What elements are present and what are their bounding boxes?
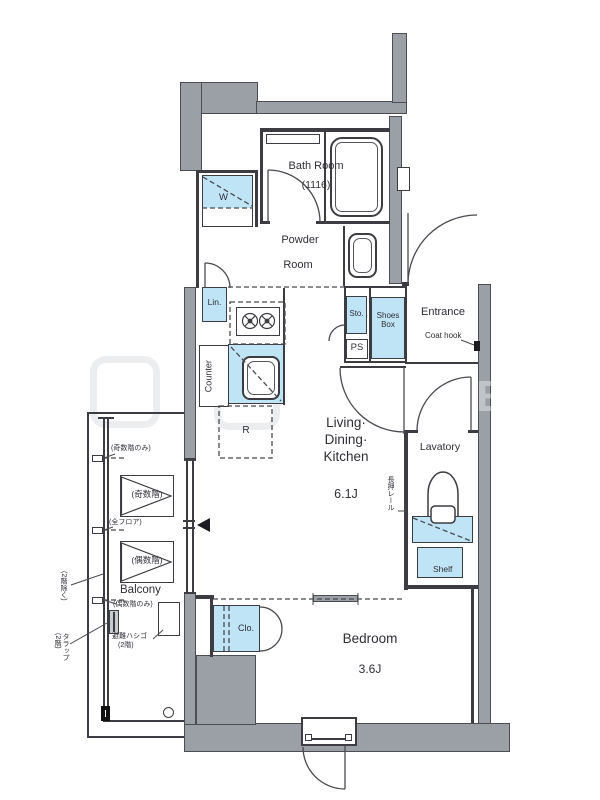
powder-room-label-1: Powder <box>269 234 331 247</box>
bedroom-window-latch-l <box>305 734 312 741</box>
closet-doors <box>260 607 282 651</box>
lavatory-top-stub-left <box>404 430 418 433</box>
divider-mark-odd <box>92 455 103 462</box>
bath-counter <box>266 134 320 144</box>
window-arrow-icon <box>197 518 210 532</box>
powder-door <box>205 263 230 288</box>
bath-size-label: (1116) <box>276 179 356 191</box>
shoes-box-label-2: Box <box>371 320 405 329</box>
coat-hook-label: Coat hook <box>425 331 461 340</box>
bedroom-window-latch-r <box>345 734 352 741</box>
bath-bottom-wall-left <box>260 221 270 224</box>
balcony-label: Balcony <box>120 584 161 597</box>
storage-label: Sto. <box>345 309 368 318</box>
lavatory-label: Lavatory <box>408 441 472 453</box>
meter-box <box>397 167 410 191</box>
counter-label: Counter <box>203 349 213 404</box>
bedroom-window <box>301 717 357 746</box>
bath-left-wall <box>260 128 263 224</box>
pipe-shaft-label: PS <box>346 343 368 354</box>
escape-ladder-label-2: (2階) <box>118 642 134 650</box>
wall-top-strip <box>256 101 407 114</box>
closet-label: Clo. <box>238 623 254 633</box>
odd-only-leader <box>104 454 115 458</box>
watermark: E <box>476 372 505 422</box>
balcony-railing-cap <box>98 417 114 419</box>
odd-floor-label: (奇数階) <box>118 490 176 500</box>
balcony-inner-bottom <box>103 720 184 722</box>
entrance-label: Entrance <box>408 306 478 319</box>
front-door <box>408 213 477 284</box>
wall-below-closet <box>196 655 256 725</box>
fridge-label: R <box>236 425 256 437</box>
linen-label: Lin. <box>202 298 227 308</box>
washbasin <box>348 233 377 278</box>
even-floor-label: (偶数階) <box>118 556 176 566</box>
bathtub <box>330 137 383 217</box>
balcony-railing-1 <box>103 418 105 721</box>
storage-door <box>329 325 345 341</box>
balcony-outer-left <box>87 412 89 738</box>
stove-box <box>236 307 280 336</box>
drain-box <box>101 706 110 721</box>
wall-left-kitchen <box>184 287 196 461</box>
drain-box-mark <box>105 710 106 717</box>
washer-label: W <box>219 193 228 204</box>
lavatory-left-wall <box>404 430 408 590</box>
ldk-window-latch-1 <box>183 520 195 522</box>
bath-room-label: Bath Room <box>276 160 356 173</box>
washer-top-wall <box>196 170 258 173</box>
ldk-window-cap-bottom <box>184 592 196 594</box>
balcony-outer-top <box>87 412 184 414</box>
washbasin-inner <box>353 238 372 273</box>
ldk-label-1: Living· <box>310 415 382 431</box>
wall-left-lower <box>184 592 196 725</box>
escape-hatch <box>158 602 180 636</box>
ldk-label-3: Kitchen <box>310 449 382 465</box>
balcony-railing-2 <box>107 418 109 721</box>
divider-mark-all <box>92 527 103 534</box>
even-only-label: (偶数階のみ) <box>113 601 153 609</box>
lavatory-counter <box>412 516 473 543</box>
kitchen-sink <box>242 356 280 400</box>
bath-bottom-wall-right <box>316 221 390 224</box>
wall-right-main <box>478 284 491 752</box>
bath-door <box>268 170 320 222</box>
ldk-size-label: 6.1J <box>320 487 372 501</box>
divider-mark-even <box>92 597 103 604</box>
wall-right-upper <box>389 116 402 284</box>
bathtub-inner <box>335 142 378 212</box>
floor-plan: E <box>0 0 600 800</box>
genkan-step <box>405 362 478 364</box>
shoes-box-label-1: Shoes <box>371 311 405 320</box>
coat-hook-leader <box>461 340 474 345</box>
bedroom-label: Bedroom <box>330 631 410 647</box>
escape-ladder-label-1: 避難ハシゴ <box>112 633 147 641</box>
wall-top-left-stub <box>180 82 202 171</box>
ldk-label-2: Dining· <box>310 432 382 448</box>
washer-right-wall <box>255 170 258 227</box>
all-floors-label: (全フロア) <box>109 519 142 527</box>
balcony-outer-bottom <box>87 736 184 738</box>
ldk-window-latch-2 <box>183 527 195 529</box>
powder-room-label-2: Room <box>269 259 327 272</box>
bedroom-size-label: 3.6J <box>340 663 400 677</box>
except-2f-label: (2階除く) <box>59 571 67 627</box>
basin-divider <box>343 226 345 286</box>
shelf-label: Shelf <box>433 565 452 575</box>
ldk-entry-wall <box>340 366 406 368</box>
bedroom-right-wall <box>471 589 474 723</box>
sliding-door-panel <box>313 595 358 602</box>
lavatory-top-stub-right <box>468 430 478 433</box>
rail-label: 長押レール <box>386 476 394 528</box>
ldk-window-cap-top <box>184 458 196 460</box>
trap-label: タラップ(2階) <box>53 633 69 667</box>
wall-top-right-bar <box>392 33 407 103</box>
lavatory-door <box>417 377 471 431</box>
lavatory-bottom-wall <box>404 585 478 589</box>
bath-divider <box>324 130 326 223</box>
kitchen-sink-inner <box>247 361 275 395</box>
left-wall-upper <box>196 170 199 288</box>
bedroom-exterior-door <box>303 746 345 789</box>
drain-circle <box>163 707 174 718</box>
ladder-symbol-line <box>113 612 115 632</box>
odd-only-label: (奇数階のみ) <box>111 445 151 453</box>
